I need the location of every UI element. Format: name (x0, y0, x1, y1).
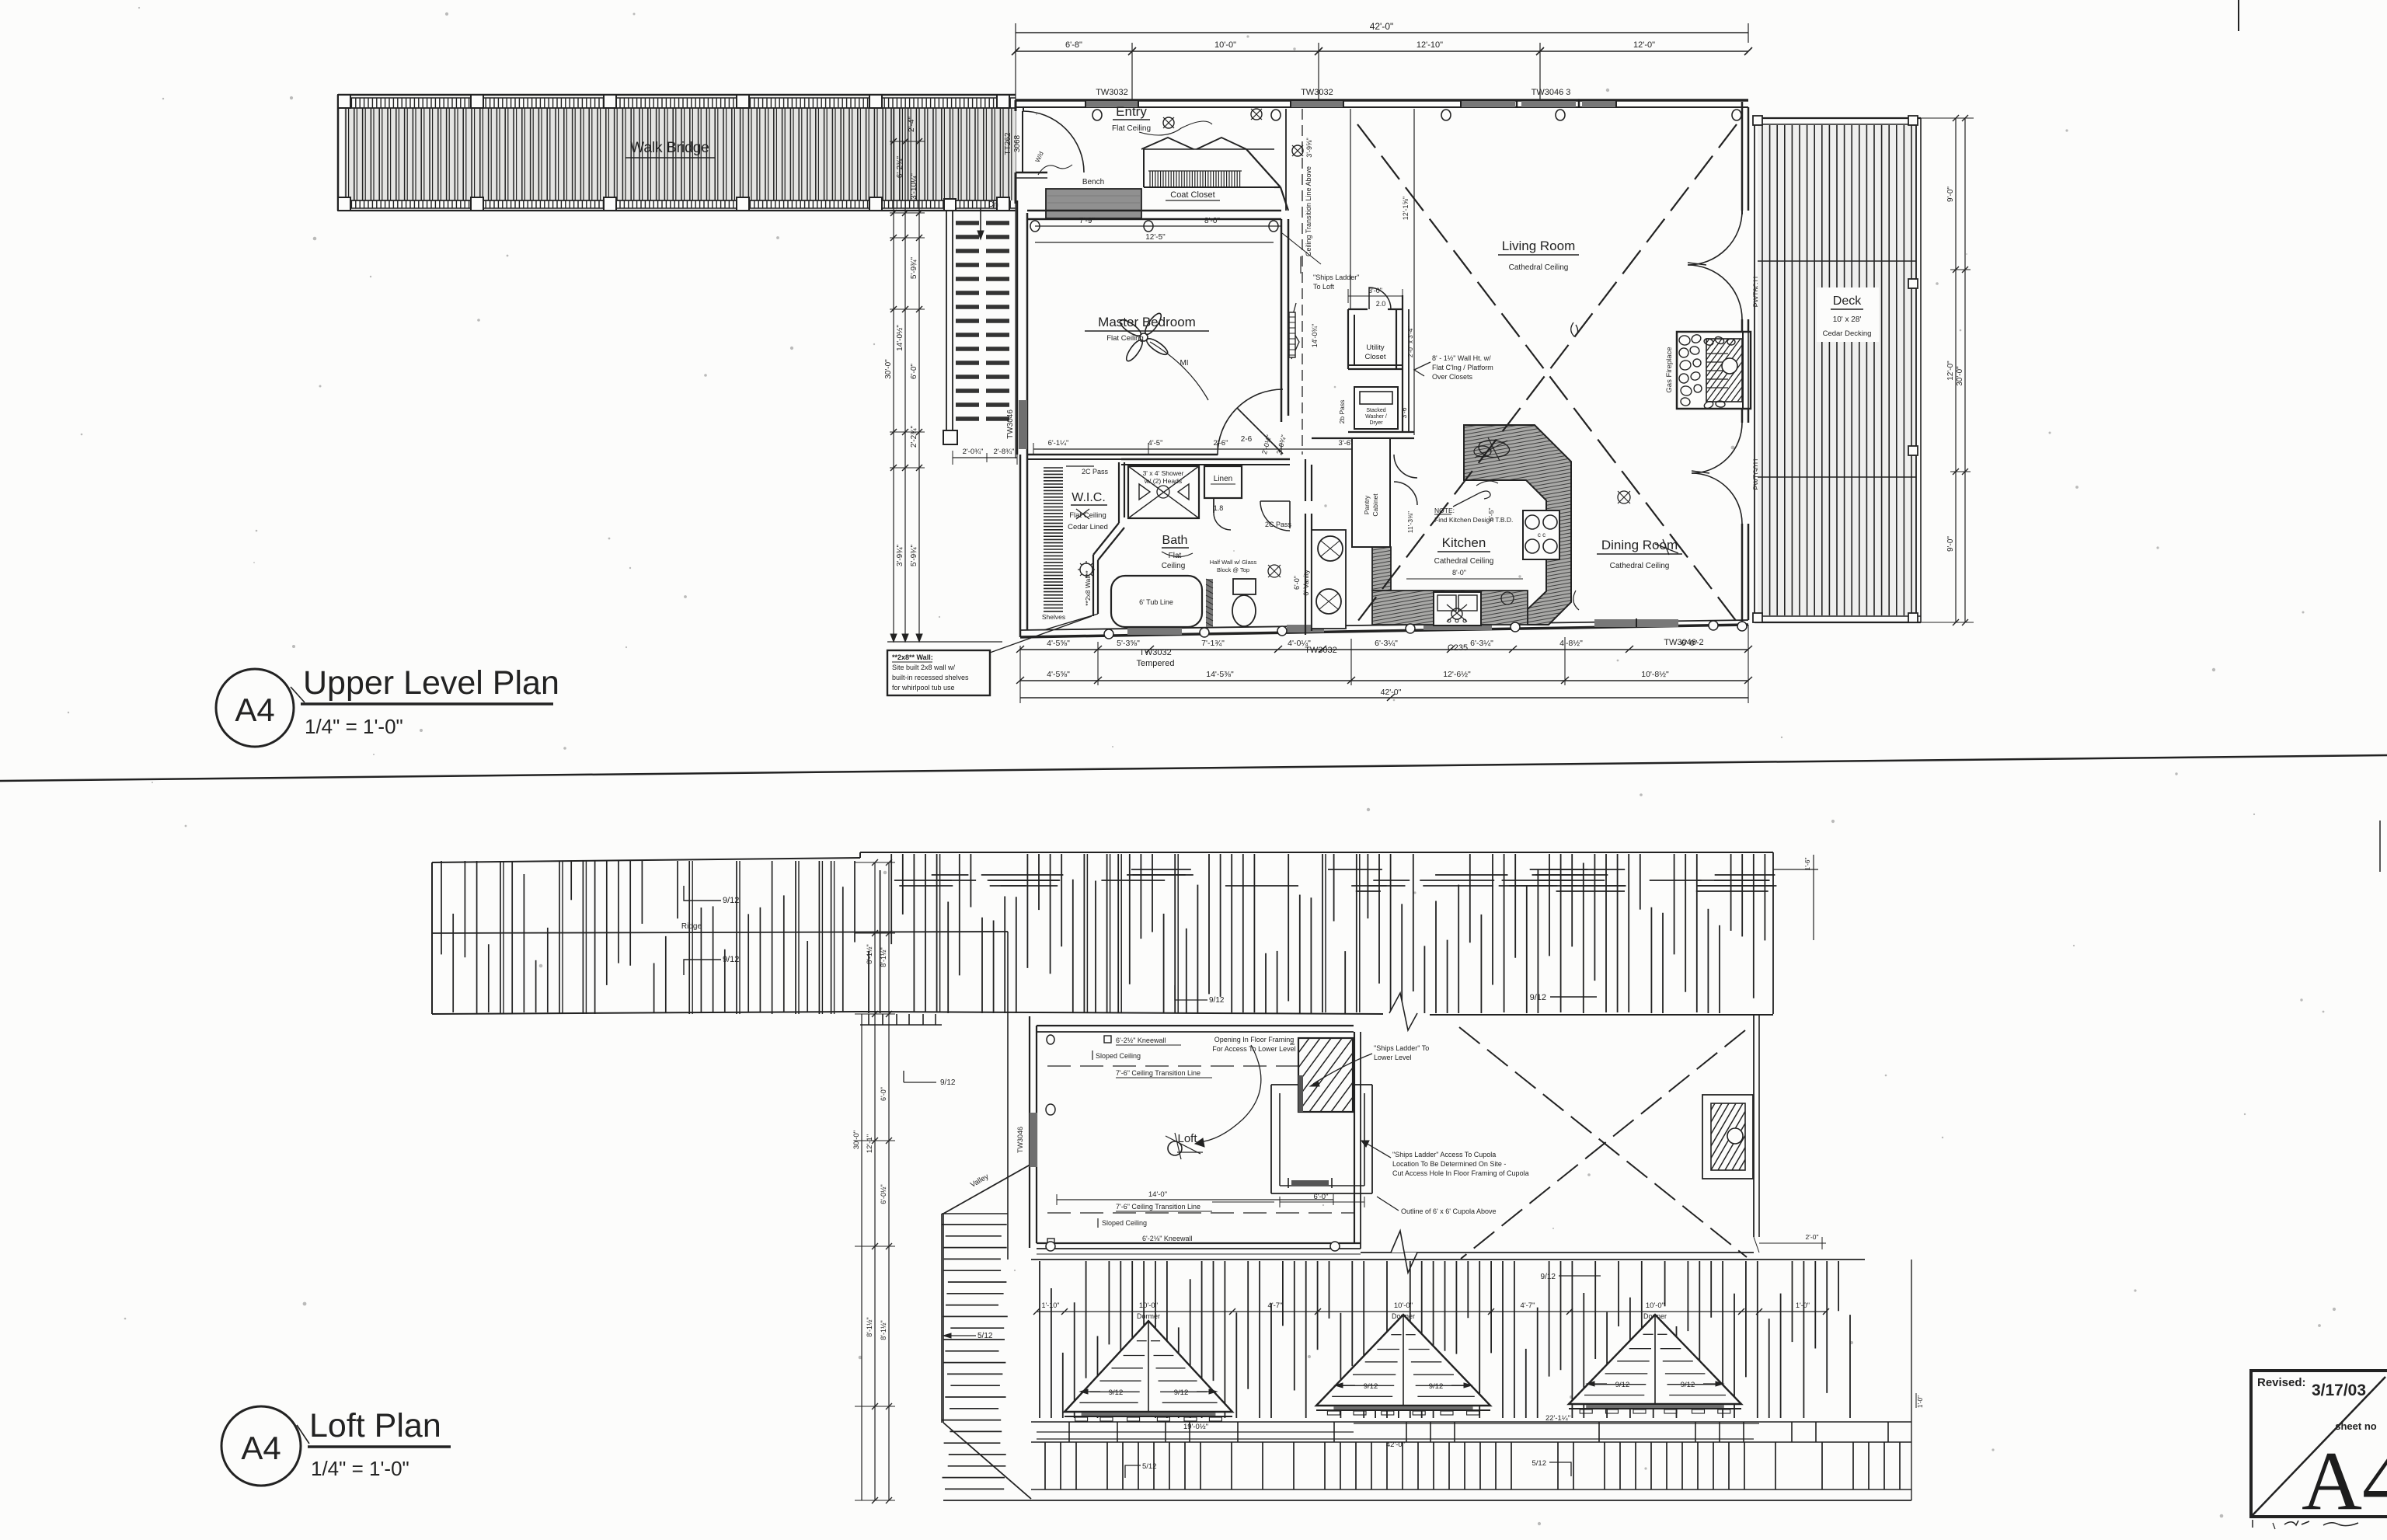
svg-text:Cathedral Ceiling: Cathedral Ceiling (1610, 562, 1670, 570)
svg-text:1/4" = 1'-0": 1/4" = 1'-0" (311, 1457, 409, 1480)
svg-text:10'-0": 10'-0" (1646, 1301, 1664, 1310)
svg-text:9/12: 9/12 (1364, 1382, 1378, 1391)
svg-text:Lower Level: Lower Level (1374, 1054, 1412, 1061)
svg-text:6'-0": 6'-0" (880, 1087, 887, 1101)
svg-text:4'-7": 4'-7" (1268, 1301, 1283, 1310)
svg-text:Pantry: Pantry (1363, 495, 1371, 514)
svg-text:sheet no: sheet no (2335, 1420, 2377, 1432)
svg-text:Flat C'lng / Platform: Flat C'lng / Platform (1432, 364, 1493, 371)
svg-text:Washer /: Washer / (1365, 414, 1387, 420)
svg-text:8'-1½": 8'-1½" (866, 1317, 873, 1336)
svg-text:12'-5": 12'-5" (1145, 233, 1166, 242)
svg-text:5'-3⅝": 5'-3⅝" (1117, 639, 1140, 648)
svg-text:9/12: 9/12 (1530, 993, 1546, 1002)
svg-text:12'-10": 12'-10" (1417, 40, 1443, 50)
svg-text:Linen: Linen (1214, 475, 1232, 483)
svg-text:9'-0": 9'-0" (1946, 536, 1955, 552)
svg-text:42'-0": 42'-0" (1386, 1441, 1405, 1449)
svg-text:19'-0½": 19'-0½" (1183, 1423, 1208, 1431)
svg-text:2'-2¾": 2'-2¾" (910, 425, 918, 448)
svg-text:30'-0": 30'-0" (852, 1131, 861, 1149)
svg-text:Upper Level Plan: Upper Level Plan (303, 664, 559, 702)
svg-text:9'-0": 9'-0" (1946, 186, 1955, 202)
svg-text:9/12: 9/12 (1429, 1382, 1444, 1391)
svg-text:3'-9¾": 3'-9¾" (896, 544, 904, 566)
svg-text:Sloped Ceiling: Sloped Ceiling (1096, 1052, 1141, 1060)
svg-text:Outline of 6' x 6' Cupola Abov: Outline of 6' x 6' Cupola Above (1401, 1207, 1497, 1215)
svg-text:Find Kitchen Design T.B.D.: Find Kitchen Design T.B.D. (1434, 516, 1513, 524)
svg-text:Entry: Entry (1116, 104, 1147, 119)
svg-text:8' - 1½" Wall Ht. w/: 8' - 1½" Wall Ht. w/ (1432, 354, 1491, 362)
svg-text:Sloped Ceiling: Sloped Ceiling (1102, 1219, 1147, 1227)
svg-text:7'-9": 7'-9" (1079, 217, 1095, 225)
svg-text:Dining Room: Dining Room (1601, 538, 1678, 552)
svg-text:Half Wall w/ Glass: Half Wall w/ Glass (1210, 559, 1257, 566)
svg-text:Site built 2x8 wall w/: Site built 2x8 wall w/ (892, 664, 956, 671)
svg-text:To Loft: To Loft (1313, 283, 1335, 291)
svg-text:3'-6": 3'-6" (1400, 406, 1408, 419)
svg-text:6'-1¼": 6'-1¼" (1048, 439, 1069, 448)
svg-text:for whirlpool tub use: for whirlpool tub use (892, 684, 955, 692)
svg-text:Ridge: Ridge (681, 922, 702, 931)
svg-text:1'-0": 1'-0" (1796, 1301, 1810, 1309)
svg-text:12'-0": 12'-0" (1633, 40, 1655, 50)
svg-text:"Ships Ladder" Access To Cupol: "Ships Ladder" Access To Cupola (1392, 1151, 1496, 1158)
svg-text:built-in recessed shelves: built-in recessed shelves (892, 674, 969, 681)
svg-text:Coat Closet: Coat Closet (1170, 190, 1214, 200)
svg-text:6'-0": 6'-0" (1681, 639, 1698, 648)
svg-text:Closet: Closet (1365, 353, 1386, 361)
svg-text:Opening In Floor Framing: Opening In Floor Framing (1214, 1036, 1295, 1044)
svg-text:**2x8 Wall**: **2x8 Wall** (1084, 570, 1092, 606)
svg-text:6'-3¼": 6'-3¼" (1375, 639, 1398, 648)
svg-text:A4: A4 (235, 692, 274, 728)
svg-text:Utility: Utility (1366, 343, 1384, 352)
svg-text:2'-6": 2'-6" (1214, 439, 1228, 448)
svg-text:4'-5": 4'-5" (1148, 439, 1163, 448)
svg-text:Over Closets: Over Closets (1432, 373, 1473, 381)
svg-text:Gas Fireplace: Gas Fireplace (1665, 347, 1674, 392)
svg-text:Ceiling Transition Line Above: Ceiling Transition Line Above (1305, 166, 1312, 256)
svg-text:"Ships Ladder" To: "Ships Ladder" To (1374, 1044, 1429, 1052)
svg-text:3' x 4' Shower: 3' x 4' Shower (1143, 469, 1184, 477)
svg-text:Cabinet: Cabinet (1371, 493, 1379, 517)
svg-text:5/12: 5/12 (1532, 1459, 1547, 1468)
svg-text:10' x 28': 10' x 28' (1833, 315, 1862, 324)
svg-text:Revised:: Revised: (2257, 1376, 2306, 1389)
svg-text:10'-0": 10'-0" (1139, 1301, 1158, 1310)
svg-text:6'-0½": 6'-0½" (880, 1184, 887, 1204)
svg-text:1/4" = 1'-0": 1/4" = 1'-0" (305, 715, 403, 738)
svg-text:Loft Plan: Loft Plan (309, 1407, 441, 1444)
svg-text:2.0: 2.0 (1376, 300, 1386, 308)
svg-text:9/12: 9/12 (940, 1078, 956, 1087)
svg-text:Living Room: Living Room (1502, 239, 1576, 253)
svg-text:Kitchen: Kitchen (1442, 535, 1486, 550)
svg-text:7'-6" Ceiling Transition Line: 7'-6" Ceiling Transition Line (1116, 1069, 1200, 1077)
svg-text:1'-10": 1'-10" (1042, 1301, 1060, 1309)
svg-text:TW3032: TW3032 (1301, 88, 1333, 97)
svg-text:A4: A4 (2302, 1435, 2387, 1528)
svg-text:6'-3¼": 6'-3¼" (1470, 639, 1493, 648)
svg-text:12'-1": 12'-1" (866, 1134, 874, 1153)
svg-text:42'-0": 42'-0" (1370, 21, 1394, 32)
svg-text:Location To Be Determined On S: Location To Be Determined On Site - (1392, 1160, 1506, 1168)
svg-text:5'-9¾": 5'-9¾" (910, 256, 918, 279)
svg-text:TW3046: TW3046 (1006, 409, 1015, 439)
svg-text:Tempered: Tempered (1137, 659, 1175, 668)
svg-text:8'-1½": 8'-1½" (880, 1320, 887, 1340)
svg-text:14'-0½": 14'-0½" (896, 325, 904, 351)
svg-text:7'-6" Ceiling Transition Line: 7'-6" Ceiling Transition Line (1116, 1203, 1200, 1211)
svg-text:9/12: 9/12 (1541, 1273, 1556, 1281)
svg-text:5/12: 5/12 (1142, 1462, 1157, 1471)
svg-text:12'-1⅝": 12'-1⅝" (1402, 197, 1410, 220)
svg-text:c c: c c (1538, 531, 1545, 538)
svg-text:42'-0": 42'-0" (1381, 688, 1402, 697)
svg-text:30'-0": 30'-0" (884, 359, 893, 379)
svg-text:Ceiling: Ceiling (1162, 562, 1186, 570)
svg-text:6'-2¾": 6'-2¾" (896, 155, 904, 178)
svg-text:Walk Bridge: Walk Bridge (630, 140, 709, 156)
svg-text:1'-6": 1'-6" (1803, 858, 1811, 871)
svg-text:**2x8** Wall:: **2x8** Wall: (892, 653, 933, 661)
svg-text:MI: MI (1180, 359, 1188, 368)
svg-text:Cedar Decking: Cedar Decking (1823, 329, 1872, 338)
svg-text:TW3032: TW3032 (1096, 88, 1128, 97)
svg-text:6'-0": 6'-0" (910, 364, 918, 379)
svg-text:9/12: 9/12 (723, 896, 739, 905)
svg-text:Block @ Top: Block @ Top (1217, 566, 1249, 573)
svg-text:6'-0": 6'-0" (1293, 576, 1301, 590)
svg-text:Bench: Bench (1082, 178, 1104, 186)
svg-text:11'-3⅝": 11'-3⅝" (1406, 511, 1414, 533)
svg-text:4'-0¼": 4'-0¼" (1288, 639, 1311, 648)
svg-text:30'-0": 30'-0" (1956, 366, 1964, 386)
svg-text:10'-0": 10'-0" (1214, 40, 1236, 50)
svg-text:Dn: Dn (988, 200, 998, 209)
svg-text:3'-6": 3'-6" (1339, 439, 1354, 448)
svg-text:6'-8": 6'-8" (1065, 40, 1082, 50)
svg-text:7'-1¾": 7'-1¾" (1201, 639, 1225, 648)
svg-text:10'-0": 10'-0" (1394, 1301, 1413, 1310)
svg-text:Bath: Bath (1162, 534, 1188, 547)
svg-text:2C Pass: 2C Pass (1265, 521, 1292, 528)
svg-text:W.I.C.: W.I.C. (1072, 491, 1106, 504)
svg-text:3068: 3068 (1013, 134, 1022, 152)
svg-text:TT262: TT262 (1004, 132, 1012, 155)
svg-text:9/12: 9/12 (1209, 996, 1225, 1005)
svg-text:3'-9⅝": 3'-9⅝" (1305, 138, 1313, 157)
svg-text:5/12: 5/12 (977, 1332, 993, 1340)
svg-text:12'-0": 12'-0" (1946, 361, 1955, 381)
svg-text:Flat Ceiling: Flat Ceiling (1112, 124, 1151, 133)
svg-text:9/12: 9/12 (1681, 1381, 1695, 1389)
svg-text:TW3046 3: TW3046 3 (1532, 88, 1571, 97)
svg-text:2b Pass: 2b Pass (1338, 400, 1346, 424)
svg-text:8'-1½": 8'-1½" (880, 947, 887, 967)
svg-text:8'-0": 8'-0" (1204, 217, 1220, 225)
svg-text:Cut Access Hole In Floor Frami: Cut Access Hole In Floor Framing of Cupo… (1392, 1169, 1529, 1177)
svg-text:14'-5⅜": 14'-5⅜" (1206, 670, 1234, 679)
svg-text:Deck: Deck (1833, 294, 1862, 308)
svg-text:2C Pass: 2C Pass (1082, 468, 1109, 476)
svg-text:8'-0": 8'-0" (1452, 569, 1466, 577)
svg-text:2'-0¾": 2'-0¾" (963, 448, 984, 456)
svg-text:12'-6½": 12'-6½" (1443, 670, 1471, 679)
svg-text:6'-2½" Kneewall: 6'-2½" Kneewall (1116, 1037, 1166, 1044)
svg-text:3'-0": 3'-0" (1368, 287, 1382, 294)
svg-text:3/17/03: 3/17/03 (2312, 1381, 2366, 1399)
svg-text:22'-1¼": 22'-1¼" (1545, 1414, 1570, 1423)
svg-text:2'-0": 2'-0" (1806, 1233, 1819, 1241)
svg-text:6'-5": 6'-5" (1487, 508, 1495, 521)
svg-text:Flat Ceiling: Flat Ceiling (1069, 511, 1106, 520)
svg-text:w/ (2) Heads: w/ (2) Heads (1144, 477, 1182, 485)
svg-text:14'-0": 14'-0" (1148, 1190, 1167, 1199)
svg-text:2-6: 2-6 (1241, 435, 1253, 444)
svg-text:1.8: 1.8 (1214, 504, 1224, 512)
svg-text:2'-4": 2'-4" (908, 117, 916, 132)
svg-text:Cathedral Ceiling: Cathedral Ceiling (1509, 263, 1569, 272)
svg-text:10'-8½": 10'-8½" (1641, 670, 1669, 679)
svg-text:Dormer: Dormer (1137, 1312, 1160, 1320)
svg-text:Shelves: Shelves (1042, 613, 1065, 621)
svg-text:Dryer: Dryer (1369, 420, 1383, 426)
svg-text:9/12: 9/12 (1109, 1388, 1124, 1397)
svg-text:6'-0": 6'-0" (1314, 1193, 1329, 1201)
svg-text:A4: A4 (241, 1430, 281, 1466)
svg-text:Stacked: Stacked (1366, 408, 1385, 413)
svg-text:8'-1½": 8'-1½" (866, 944, 873, 963)
svg-text:C235: C235 (1448, 643, 1468, 653)
svg-text:5'-9¾": 5'-9¾" (910, 544, 918, 566)
svg-text:Cedar Lined: Cedar Lined (1068, 523, 1108, 531)
svg-text:9/12: 9/12 (1174, 1388, 1189, 1397)
svg-text:6' Tub Line: 6' Tub Line (1139, 598, 1173, 606)
svg-text:6' Vanity: 6' Vanity (1302, 570, 1310, 596)
svg-text:2'-8¾": 2'-8¾" (994, 448, 1015, 456)
svg-text:Cathedral Ceiling: Cathedral Ceiling (1434, 557, 1494, 566)
svg-text:4'-8½": 4'-8½" (1559, 639, 1583, 648)
svg-text:9/12: 9/12 (1615, 1381, 1630, 1389)
svg-text:"Ships Ladder": "Ships Ladder" (1313, 274, 1359, 281)
svg-text:4'-7": 4'-7" (1521, 1301, 1535, 1310)
svg-text:1'-0": 1'-0" (1917, 1395, 1924, 1408)
svg-text:3'-10¼": 3'-10¼" (909, 173, 918, 200)
svg-text:TW3046: TW3046 (1016, 1127, 1024, 1153)
svg-text:4'-5⅝": 4'-5⅝" (1047, 670, 1070, 679)
svg-text:14'-0¾": 14'-0¾" (1311, 324, 1319, 347)
svg-text:4'-5⅝": 4'-5⅝" (1047, 639, 1070, 648)
svg-text:6'-2⅛" Kneewall: 6'-2⅛" Kneewall (1142, 1235, 1192, 1242)
svg-text:9/12: 9/12 (723, 955, 739, 964)
